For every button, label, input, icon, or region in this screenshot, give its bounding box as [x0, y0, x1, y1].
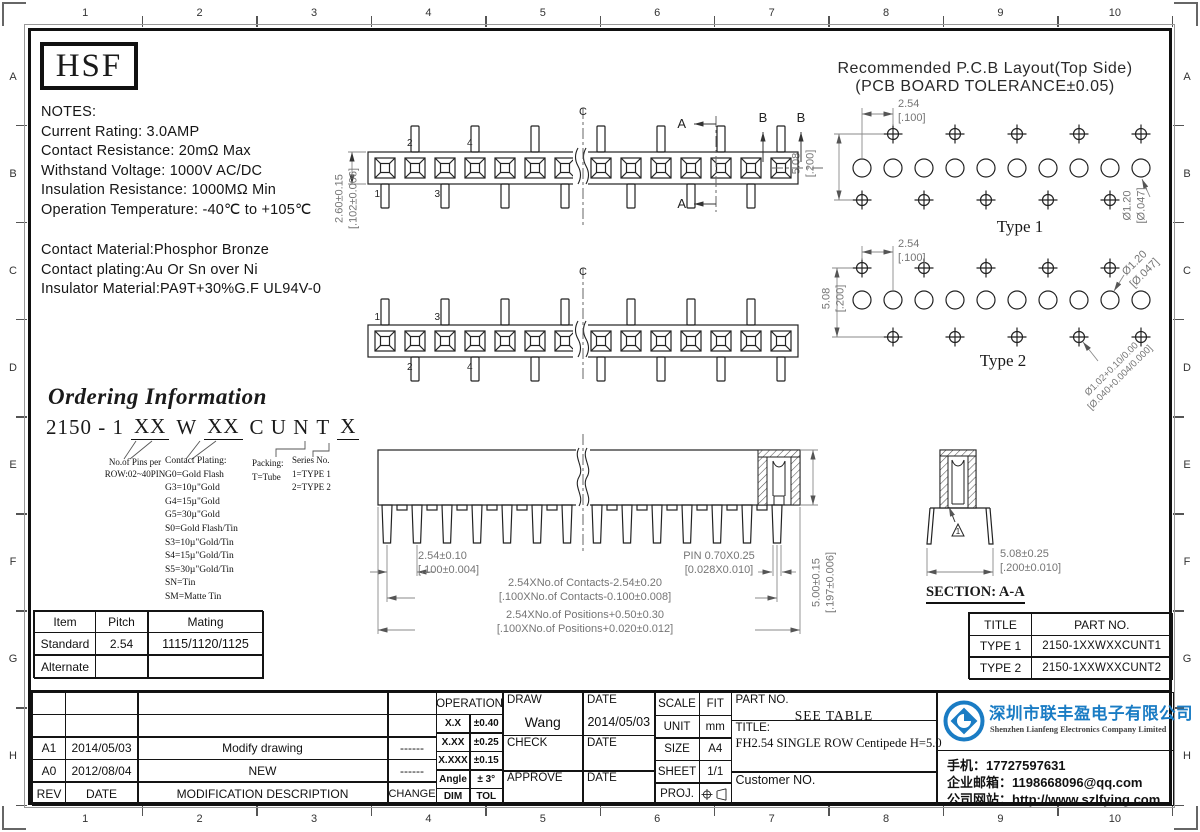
front-contacts-dim-in: [.100XNo.of Contacts-0.100±0.008] — [415, 591, 755, 605]
front-pin-dim: PIN 0.70X0.25 [0.028X0.010] — [655, 550, 783, 577]
pin-number: 1 — [374, 312, 380, 323]
note-line: Operation Temperature: -40℃ to +105℃ — [41, 201, 311, 221]
note-line: Current Rating: 3.0AMP — [41, 123, 311, 143]
ruler-number: 7 — [769, 7, 775, 19]
view1-height-dim: 2.60±0.15 [.102±0.006] — [334, 139, 361, 259]
proj-symbol-cell — [699, 782, 733, 806]
tol-dim: X.X — [437, 715, 470, 733]
note-line: Contact plating:Au Or Sn over Ni — [41, 261, 321, 281]
mating-table: Item Pitch Mating Standard 2.54 1115/112… — [33, 610, 263, 678]
mating-cell: Alternate — [35, 655, 95, 678]
materials-block: Contact Material:Phosphor Bronze Contact… — [41, 241, 321, 300]
centerline-label: C — [579, 266, 587, 278]
ruler-number: 7 — [769, 813, 775, 825]
section-b-label: B — [759, 110, 768, 125]
dim-text: [.100] — [898, 112, 926, 126]
front-contacts-dim: 2.54XNo.of Contacts-2.54±0.20 — [415, 577, 755, 591]
corner-mark — [1174, 2, 1198, 26]
tol-footer-dim: DIM — [437, 789, 470, 806]
part-cell-type1: TYPE 1 — [970, 636, 1031, 657]
dim-text: 2.60±0.15 — [334, 139, 348, 259]
title-block: A1 2014/05/03 Modify drawing ------ A0 2… — [30, 690, 1172, 804]
pcb-type2-holes — [853, 259, 1151, 347]
front-height-dim: 5.00±0.15 [.197±0.006] — [811, 523, 838, 643]
ordering-title-text: Ordering Information — [48, 384, 267, 409]
company-website: 公司网站：http://www.szlfying.com — [947, 789, 1160, 808]
ann-text: S0=Gold Flash/Tin — [165, 523, 238, 537]
ann-text: G3=10µ"Gold — [165, 482, 238, 496]
tolerance-header: OPERATION — [437, 693, 503, 714]
company-name-en: Shenzhen Lianfeng Electronics Company Li… — [990, 725, 1166, 734]
scale-label: SCALE — [655, 693, 699, 715]
rev-id: A0 — [33, 760, 65, 782]
code-series: X — [337, 414, 359, 440]
ann-text: G0=Gold Flash — [165, 469, 238, 483]
approve-cell: APPROVE — [502, 770, 584, 806]
section-a-label: A — [677, 116, 686, 131]
part-cell-type1-pn: 2150-1XXWXXCUNT1 — [1032, 636, 1173, 657]
date-label: DATE — [587, 772, 617, 784]
ruler-number: 4 — [425, 813, 431, 825]
mating-header-pitch: Pitch — [96, 612, 148, 632]
dim-text: [Ø.047] — [1135, 174, 1149, 238]
hsf-logo-text: HSF — [56, 48, 123, 85]
type1-pitch-dim: 2.54 [.100] — [898, 98, 926, 125]
title-cell: TITLE: FH2.54 SINGLE ROW Centipede H=5.0 — [731, 720, 938, 773]
rev-footer-change: CHANGE — [388, 782, 436, 805]
approve-label: APPROVE — [507, 772, 563, 784]
size-value: A4 — [700, 738, 732, 760]
ann-text: S3=10µ"Gold/Tin — [165, 537, 238, 551]
ruler-number: 5 — [540, 813, 546, 825]
dim-text: 2.54±0.10 — [418, 550, 479, 564]
rev-cell — [137, 714, 389, 738]
rev-description: Modify drawing — [138, 737, 388, 759]
ordering-title: Ordering Information — [48, 384, 267, 410]
rev-description: NEW — [138, 760, 388, 782]
front-pitch-dim: 2.54±0.10 [.100±0.004] — [418, 550, 479, 577]
ruler-letter: F — [10, 556, 17, 568]
section-a-label: A — [677, 196, 686, 211]
mating-cell: 2.54 — [96, 633, 148, 655]
front-positions-dim-in: [.100XNo.of Positions+0.020±0.012] — [415, 623, 755, 637]
partno-label: PART NO. — [736, 694, 789, 706]
ruler-bottom: 1 2 3 4 5 6 7 8 9 10 — [28, 806, 1172, 832]
note-line: Contact Material:Phosphor Bronze — [41, 241, 321, 261]
ruler-number: 2 — [197, 813, 203, 825]
ruler-letter: H — [9, 750, 17, 762]
rev-footer-date: DATE — [66, 782, 138, 805]
dim-text: 2.54 — [898, 98, 926, 112]
dim-text: [0.028X0.010] — [655, 564, 783, 578]
check-date-cell: DATE — [582, 735, 656, 772]
type2-label: Type 2 — [943, 351, 1063, 371]
tol-val: ±0.40 — [470, 715, 503, 733]
ruler-letter: G — [1183, 653, 1192, 665]
dim-text: [.197±0.006] — [824, 523, 838, 643]
notes-heading: NOTES: — [41, 103, 311, 123]
draw-cell: DRAW Wang — [502, 692, 584, 736]
revision-triangle: 1 — [949, 507, 964, 536]
partno-cell: PART NO. SEE TABLE — [731, 692, 938, 721]
ann-text: T=Tube — [252, 471, 284, 485]
dim-text: PIN 0.70X0.25 — [655, 550, 783, 564]
rev-cell — [32, 692, 66, 715]
pin-number: 4 — [467, 362, 473, 373]
revision-number: 1 — [956, 527, 961, 536]
size-label: SIZE — [655, 738, 699, 760]
dim-text: [.100XNo.of Positions+0.020±0.012] — [497, 623, 673, 635]
ann-text: S5=30µ"Gold/Tin — [165, 564, 238, 578]
proj-label: PROJ. — [655, 783, 699, 805]
rev-footer-desc: MODIFICATION DESCRIPTION — [138, 782, 388, 805]
pin-number: 3 — [434, 312, 440, 323]
type1-label-text: Type 1 — [997, 217, 1044, 236]
top-view-2: 1 3 2 4 C — [336, 266, 826, 386]
ruler-top: 1 2 3 4 5 6 7 8 9 10 — [28, 0, 1172, 26]
tol-dim: Angle — [437, 770, 470, 788]
dim-text: 2.54XNo.of Positions+0.50±0.30 — [506, 609, 664, 621]
dim-text: [.200] — [834, 269, 848, 329]
dim-lines — [927, 548, 993, 576]
ruler-number: 10 — [1109, 7, 1121, 19]
type2-label-text: Type 2 — [980, 351, 1027, 370]
rev-cell — [137, 692, 389, 715]
tol-val: ± 3° — [470, 770, 503, 788]
front-positions-dim: 2.54XNo.of Positions+0.50±0.30 — [415, 609, 755, 623]
draw-date-cell: DATE 2014/05/03 — [582, 692, 656, 736]
note-line: Withstand Voltage: 1000V AC/DC — [41, 162, 311, 182]
tol-val: ±0.15 — [470, 752, 503, 770]
ruler-number: 1 — [82, 813, 88, 825]
front-view-section-end — [758, 450, 800, 505]
ruler-number: 9 — [997, 7, 1003, 19]
note-line: Insulation Resistance: 1000MΩ Min — [41, 181, 311, 201]
rev-cell — [387, 714, 437, 738]
dim-text: [.100±0.004] — [418, 564, 479, 578]
ordering-plating-list: Contact Plating: G0=Gold Flash G3=10µ"Go… — [165, 455, 238, 605]
date-label: DATE — [587, 694, 617, 706]
rev-footer-rev: REV — [33, 782, 65, 805]
company-contact-cell: 手机：17727597631 企业邮箱：1198668096@qq.com 公司… — [936, 750, 1174, 807]
dim-text: [.100XNo.of Contacts-0.100±0.008] — [499, 591, 671, 603]
dim-text: [.200±0.010] — [1000, 562, 1061, 576]
section-b-label: B — [797, 110, 806, 125]
rev-change: ------ — [388, 737, 436, 759]
pcb-layout-heading: Recommended P.C.B Layout(Top Side) (PCB … — [790, 60, 1180, 96]
corner-mark — [1174, 806, 1198, 830]
centerlines — [583, 108, 824, 226]
dim-text: [.100] — [898, 252, 926, 266]
third-angle-projection-icon — [701, 788, 729, 801]
ruler-number: 9 — [997, 813, 1003, 825]
ruler-number: 8 — [883, 813, 889, 825]
sheet-value: 1/1 — [700, 761, 732, 783]
tol-dim: X.XX — [437, 733, 470, 751]
part-cell-type2: TYPE 2 — [970, 657, 1031, 679]
top-view-1: 2 4 1 3 C A A B B — [336, 104, 826, 234]
ruler-number: 3 — [311, 813, 317, 825]
mating-header-mating: Mating — [148, 612, 263, 632]
ruler-letter: E — [9, 459, 16, 471]
pin-number: 1 — [374, 189, 380, 200]
pin-number: 4 — [467, 138, 473, 149]
customer-label: Customer NO. — [736, 773, 816, 787]
ruler-number: 10 — [1109, 813, 1121, 825]
title-label: TITLE: — [736, 722, 771, 734]
ruler-letter: G — [9, 653, 18, 665]
approve-date-cell: DATE — [582, 770, 656, 806]
ruler-number: 8 — [883, 7, 889, 19]
type2-pitch-dim: 2.54 [.100] — [898, 238, 926, 265]
ruler-letter: A — [1183, 71, 1190, 83]
centerline-label: C — [579, 106, 587, 118]
part-cell-type2-pn: 2150-1XXWXXCUNT2 — [1032, 657, 1173, 679]
pin-number: 2 — [407, 138, 413, 149]
type1-label: Type 1 — [960, 217, 1080, 237]
section-label: SECTION: A-A — [926, 584, 1025, 604]
rev-date: 2012/08/04 — [66, 760, 138, 782]
ann-heading: Packing: — [252, 457, 284, 471]
ruler-number: 5 — [540, 7, 546, 19]
ruler-letter: F — [1184, 556, 1191, 568]
rev-cell — [65, 692, 139, 715]
corner-mark — [2, 806, 26, 830]
ruler-number: 4 — [425, 7, 431, 19]
section-label-text: SECTION: A-A — [926, 584, 1025, 600]
pcb-layout-title: Recommended P.C.B Layout(Top Side) — [790, 60, 1180, 78]
dim-text: 5.08±0.25 — [1000, 548, 1061, 562]
tol-val: ±0.25 — [470, 733, 503, 751]
rev-cell — [387, 692, 437, 715]
mating-cell — [148, 655, 263, 678]
tol-dim: X.XXX — [437, 752, 470, 770]
corner-mark — [2, 2, 26, 26]
rev-date: 2014/05/03 — [66, 737, 138, 759]
drawing-sheet: 1 2 3 4 5 6 7 8 9 10 1 2 3 4 5 6 7 8 9 1… — [0, 0, 1200, 832]
scale-value: FIT — [700, 693, 732, 715]
ruler-number: 6 — [654, 813, 660, 825]
ann-text: G4=15µ"Gold — [165, 496, 238, 510]
ruler-letter: D — [9, 362, 17, 374]
pin-number: 2 — [407, 362, 413, 373]
ruler-letter: A — [9, 71, 16, 83]
ordering-packing: Packing: T=Tube — [252, 457, 284, 484]
company-logo-icon — [942, 699, 986, 743]
mating-cell — [96, 655, 148, 678]
check-label: CHECK — [507, 737, 547, 749]
mating-cell: 1115/1120/1125 — [148, 633, 263, 655]
mating-header-item: Item — [35, 612, 95, 632]
rev-change: ------ — [388, 760, 436, 782]
rev-id: A1 — [33, 737, 65, 759]
ann-text: 1=TYPE 1 — [292, 468, 331, 482]
pcb-layout-subtitle: (PCB BOARD TOLERANCE±0.05) — [790, 78, 1180, 96]
draw-label: DRAW — [507, 694, 542, 706]
company-name-cn: 深圳市联丰盈电子有限公司 — [989, 700, 1193, 724]
note-line: Contact Resistance: 20mΩ Max — [41, 142, 311, 162]
part-header-partno: PART NO. — [1032, 614, 1173, 635]
ann-text: S4=15µ"Gold/Tin — [165, 550, 238, 564]
type1-hole-dim: Ø1.20 [Ø.047] — [1122, 174, 1149, 238]
company-header-cell: 深圳市联丰盈电子有限公司 Shenzhen Lianfeng Electroni… — [936, 692, 1174, 751]
check-cell: CHECK — [502, 735, 584, 772]
ann-text: G5=30µ"Gold — [165, 509, 238, 523]
mating-cell: Standard — [35, 633, 95, 655]
rev-cell — [65, 714, 139, 738]
ann-text: SM=Matte Tin — [165, 591, 238, 605]
note-line: Insulator Material:PA9T+30%G.F UL94V-0 — [41, 280, 321, 300]
ruler-number: 3 — [311, 7, 317, 19]
notes-block: NOTES: Current Rating: 3.0AMP Contact Re… — [41, 103, 311, 220]
dim-text: 2.54 — [898, 238, 926, 252]
part-number-table: TITLE PART NO. TYPE 1 2150-1XXWXXCUNT1 T… — [968, 612, 1172, 679]
pcb-type1-dim-lines — [834, 108, 1150, 200]
ruler-number: 6 — [654, 7, 660, 19]
ruler-letter: B — [9, 168, 16, 180]
dim-text: [.102±0.006] — [347, 139, 361, 259]
ann-heading: Contact Plating: — [165, 455, 238, 469]
rev-cell — [32, 714, 66, 738]
ruler-number: 1 — [82, 7, 88, 19]
pin-number: 3 — [434, 189, 440, 200]
ann-text: SN=Tin — [165, 577, 238, 591]
hsf-logo: HSF — [40, 42, 138, 90]
section-dim: 5.08±0.25 [.200±0.010] — [1000, 548, 1061, 575]
sheet-label: SHEET — [655, 761, 699, 783]
customer-cell: Customer NO. — [731, 771, 938, 806]
ann-text: 2=TYPE 2 — [292, 481, 331, 495]
dim-text: 5.00±0.15 — [811, 523, 825, 643]
ruler-letter: H — [1183, 750, 1191, 762]
ruler-number: 2 — [197, 7, 203, 19]
unit-value: mm — [700, 716, 732, 738]
ann-heading: Series No. — [292, 454, 331, 468]
dim-text: Ø1.20 — [1122, 174, 1136, 238]
unit-label: UNIT — [655, 716, 699, 738]
ruler-letter: E — [1183, 459, 1190, 471]
date-label: DATE — [587, 737, 617, 749]
title-value: FH2.54 SINGLE ROW Centipede H=5.0 — [736, 736, 942, 751]
part-header-title: TITLE — [970, 614, 1031, 635]
ruler-letter: C — [9, 265, 17, 277]
dim-text: 2.54XNo.of Contacts-2.54±0.20 — [508, 577, 662, 589]
ruler-left: A B C D E F G H — [0, 28, 26, 805]
tol-footer-tol: TOL — [470, 789, 503, 806]
pcb-type1-holes — [853, 125, 1151, 210]
ordering-series: Series No. 1=TYPE 1 2=TYPE 2 — [292, 454, 331, 495]
